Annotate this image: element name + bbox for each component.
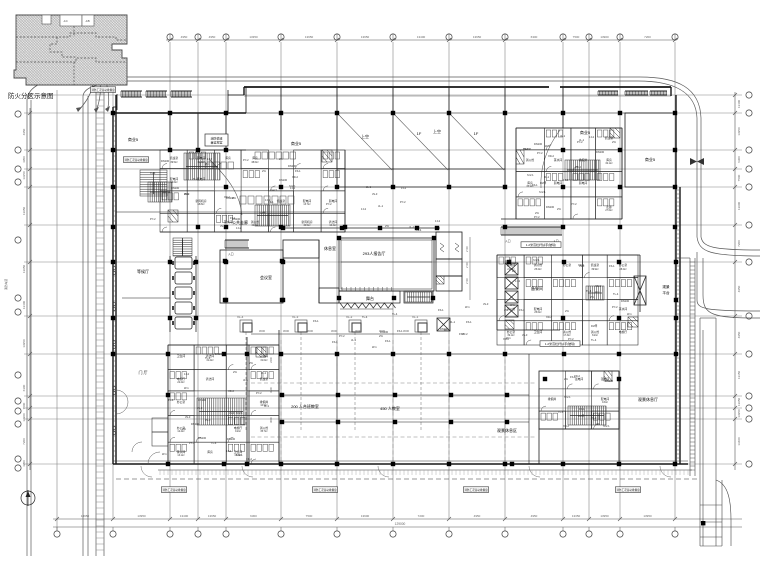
svg-text:2%: 2% xyxy=(262,169,266,173)
svg-text:DN100: DN100 xyxy=(191,422,200,426)
svg-text:13950: 13950 xyxy=(737,397,741,406)
svg-text:入口: 入口 xyxy=(228,252,234,256)
svg-text:JL-1: JL-1 xyxy=(560,134,566,138)
svg-text:值班室: 值班室 xyxy=(260,377,269,381)
svg-text:h=2.1: h=2.1 xyxy=(603,424,610,428)
svg-text:商业5: 商业5 xyxy=(128,136,139,142)
svg-text:FS-1: FS-1 xyxy=(570,375,576,379)
svg-text:13350: 13350 xyxy=(737,370,741,379)
svg-text:库房: 库房 xyxy=(606,158,612,162)
svg-text:JL-1: JL-1 xyxy=(544,175,550,179)
svg-text:38.6m²: 38.6m² xyxy=(251,161,258,164)
svg-text:TL-4: TL-4 xyxy=(150,171,156,175)
svg-text:25.6m²: 25.6m² xyxy=(534,311,541,314)
svg-text:S≈1079m²: S≈1079m² xyxy=(92,72,108,76)
svg-text:JL-1: JL-1 xyxy=(409,225,415,229)
svg-text:13350: 13350 xyxy=(22,171,26,180)
svg-text:FM甲: FM甲 xyxy=(591,324,598,328)
svg-text:1:12: 1:12 xyxy=(236,226,242,230)
svg-text:入口: 入口 xyxy=(505,239,511,243)
svg-text:W-1: W-1 xyxy=(595,290,600,294)
svg-text:13950: 13950 xyxy=(22,339,26,348)
svg-text:2400: 2400 xyxy=(269,357,273,363)
svg-text:h=2.1: h=2.1 xyxy=(564,395,571,399)
svg-text:13950: 13950 xyxy=(643,514,652,518)
svg-text:PY-2: PY-2 xyxy=(534,215,540,219)
svg-text:XD-2: XD-2 xyxy=(503,337,509,341)
svg-text:7500: 7500 xyxy=(306,514,313,518)
svg-text:PY-2: PY-2 xyxy=(571,202,577,206)
svg-text:W-1: W-1 xyxy=(205,162,210,166)
svg-text:JS-3: JS-3 xyxy=(205,418,211,422)
svg-text:13950: 13950 xyxy=(22,264,26,273)
svg-text:6300: 6300 xyxy=(531,35,538,39)
svg-text:TL-4: TL-4 xyxy=(558,410,564,414)
svg-text:库房: 库房 xyxy=(207,450,213,454)
svg-text:FS-1: FS-1 xyxy=(609,264,615,268)
svg-text:13400: 13400 xyxy=(180,514,189,518)
svg-text:7200: 7200 xyxy=(22,438,26,445)
svg-text:S≈1771m²: S≈1771m² xyxy=(22,28,38,32)
svg-text:13950: 13950 xyxy=(600,514,609,518)
svg-text:FS-1: FS-1 xyxy=(579,407,585,411)
svg-text:FS-1: FS-1 xyxy=(230,216,236,220)
svg-text:等候厅: 等候厅 xyxy=(137,268,149,274)
svg-text:13900: 13900 xyxy=(600,35,609,39)
svg-text:商业5: 商业5 xyxy=(580,129,591,135)
svg-text:13.7m²: 13.7m² xyxy=(303,203,310,206)
svg-text:XL-3: XL-3 xyxy=(292,315,299,319)
svg-text:3600: 3600 xyxy=(269,417,273,423)
svg-text:13900: 13900 xyxy=(22,413,26,422)
svg-text:消火栓: 消火栓 xyxy=(563,330,572,334)
svg-text:28.2m²: 28.2m² xyxy=(619,268,626,271)
svg-text:1F: 1F xyxy=(474,131,479,136)
svg-text:JL-1: JL-1 xyxy=(261,371,267,375)
svg-text:FS-1: FS-1 xyxy=(459,332,465,336)
svg-text:观景: 观景 xyxy=(662,284,670,289)
svg-text:3600: 3600 xyxy=(355,329,362,333)
svg-text:FS-1: FS-1 xyxy=(385,339,391,343)
svg-text:1:12: 1:12 xyxy=(515,279,521,283)
svg-text:W-1: W-1 xyxy=(372,345,377,349)
svg-text:17.3m²: 17.3m² xyxy=(563,334,570,337)
svg-text:4950: 4950 xyxy=(474,514,481,518)
svg-text:13950: 13950 xyxy=(473,35,482,39)
svg-text:消防工况自动排烟窗: 消防工况自动排烟窗 xyxy=(124,158,148,162)
svg-text:新风机房: 新风机房 xyxy=(301,220,312,224)
svg-text:XL-4: XL-4 xyxy=(237,315,244,319)
svg-text:32.1m²: 32.1m² xyxy=(605,162,612,165)
svg-text:2%: 2% xyxy=(233,370,237,374)
svg-text:W-1: W-1 xyxy=(510,303,515,307)
svg-text:观景休息厅: 观景休息厅 xyxy=(638,396,658,402)
svg-text:电梯厅: 电梯厅 xyxy=(619,330,628,334)
svg-text:消火栓: 消火栓 xyxy=(591,330,600,334)
svg-text:防火分区示意图: 防火分区示意图 xyxy=(8,91,54,100)
svg-text:JS-3: JS-3 xyxy=(372,192,378,196)
svg-text:-1B: -1B xyxy=(85,19,90,23)
svg-text:13950: 13950 xyxy=(208,514,217,518)
svg-text:293人报告厅: 293人报告厅 xyxy=(363,250,386,256)
svg-text:1.2米高栏杆扶手(玻璃): 1.2米高栏杆扶手(玻璃) xyxy=(526,242,556,247)
svg-text:消防车道: 消防车道 xyxy=(4,279,8,290)
svg-text:配电间: 配电间 xyxy=(170,177,179,181)
svg-text:2%: 2% xyxy=(249,361,253,365)
svg-text:JS-3: JS-3 xyxy=(220,224,226,228)
svg-text:DN100: DN100 xyxy=(546,205,555,209)
svg-text:13400: 13400 xyxy=(737,99,741,108)
svg-text:W-1: W-1 xyxy=(465,305,470,309)
svg-text:FS-1: FS-1 xyxy=(438,308,444,312)
svg-text:1:12: 1:12 xyxy=(290,186,296,190)
svg-text:13950: 13950 xyxy=(22,206,26,215)
svg-text:S≈1263m²: S≈1263m² xyxy=(82,45,98,49)
svg-text:DN100: DN100 xyxy=(534,142,543,146)
svg-text:平台: 平台 xyxy=(662,290,670,295)
svg-text:13350: 13350 xyxy=(249,35,258,39)
svg-text:13400: 13400 xyxy=(417,35,426,39)
svg-text:FM甲: FM甲 xyxy=(540,181,547,185)
svg-text:2%: 2% xyxy=(535,211,539,215)
svg-text:PY-2: PY-2 xyxy=(400,200,406,204)
svg-text:休息室: 休息室 xyxy=(324,245,336,251)
svg-text:2%: 2% xyxy=(512,269,516,273)
svg-text:TL-4: TL-4 xyxy=(362,315,368,319)
svg-text:S≈1948m²: S≈1948m² xyxy=(20,51,36,55)
svg-text:W-1: W-1 xyxy=(184,192,189,196)
svg-text:消火栓: 消火栓 xyxy=(526,158,535,162)
svg-text:上空: 上空 xyxy=(433,128,441,134)
svg-text:TL-4: TL-4 xyxy=(193,177,199,181)
svg-text:消防工况自动排烟窗: 消防工况自动排烟窗 xyxy=(162,488,186,492)
svg-text:42.2m²: 42.2m² xyxy=(251,224,258,227)
svg-text:FM甲: FM甲 xyxy=(259,211,266,215)
svg-text:门 厅: 门 厅 xyxy=(138,369,147,375)
svg-text:XD-2: XD-2 xyxy=(575,165,581,169)
svg-text:h=2.1: h=2.1 xyxy=(271,188,278,192)
svg-text:弱电间: 弱电间 xyxy=(579,181,588,185)
svg-text:TL-4: TL-4 xyxy=(392,312,398,316)
svg-text:FM甲: FM甲 xyxy=(578,414,585,418)
svg-text:清洁间: 清洁间 xyxy=(206,377,215,381)
svg-text:配电间: 配电间 xyxy=(534,307,543,311)
svg-text:消防工况自动排烟窗: 消防工况自动排烟窗 xyxy=(616,488,640,492)
svg-text:450 人教室: 450 人教室 xyxy=(380,405,400,411)
svg-text:2%: 2% xyxy=(612,140,616,144)
svg-text:消火栓: 消火栓 xyxy=(260,426,269,430)
svg-text:排烟井: 排烟井 xyxy=(260,400,269,404)
svg-text:13400: 13400 xyxy=(737,437,741,446)
svg-text:1:12: 1:12 xyxy=(184,372,190,376)
svg-text:2%: 2% xyxy=(564,377,568,381)
svg-text:-1C: -1C xyxy=(63,19,69,23)
svg-text:DN100: DN100 xyxy=(161,159,170,163)
svg-text:4950: 4950 xyxy=(209,35,216,39)
svg-text:JS-3: JS-3 xyxy=(197,406,203,410)
svg-text:13950: 13950 xyxy=(737,127,741,136)
svg-text:DN100: DN100 xyxy=(198,436,207,440)
svg-text:DN100: DN100 xyxy=(198,398,207,402)
svg-text:JL-1: JL-1 xyxy=(264,404,270,408)
svg-text:值班室: 值班室 xyxy=(170,156,179,160)
svg-text:XL-1: XL-1 xyxy=(412,315,419,319)
svg-text:DN100: DN100 xyxy=(440,327,449,331)
svg-text:DN100: DN100 xyxy=(226,196,235,200)
svg-text:弱电间: 弱电间 xyxy=(554,181,563,185)
svg-text:卫生间: 卫生间 xyxy=(177,354,186,358)
svg-text:弱电间: 弱电间 xyxy=(197,156,206,160)
svg-text:4950: 4950 xyxy=(22,128,26,135)
svg-text:TL-4: TL-4 xyxy=(211,441,217,445)
svg-text:PY-2: PY-2 xyxy=(189,441,195,445)
svg-text:JS-3: JS-3 xyxy=(483,302,489,306)
svg-text:茶水间: 茶水间 xyxy=(554,158,563,162)
svg-text:备餐间: 备餐间 xyxy=(531,285,543,291)
svg-text:茶水间: 茶水间 xyxy=(177,450,186,454)
svg-text:W-1: W-1 xyxy=(184,386,189,390)
svg-text:4950: 4950 xyxy=(737,285,741,292)
svg-text:JL-1: JL-1 xyxy=(351,338,357,342)
svg-text:PY-2: PY-2 xyxy=(537,151,543,155)
svg-text:FS-1: FS-1 xyxy=(268,200,274,204)
svg-text:W-1: W-1 xyxy=(162,452,167,456)
svg-text:JL-1: JL-1 xyxy=(366,185,372,189)
svg-text:4950: 4950 xyxy=(737,331,741,338)
svg-text:13950: 13950 xyxy=(305,35,314,39)
svg-text:DN100: DN100 xyxy=(171,186,180,190)
svg-text:3600: 3600 xyxy=(307,329,314,333)
svg-text:h=2.1: h=2.1 xyxy=(236,411,243,415)
svg-text:2%: 2% xyxy=(596,422,600,426)
svg-text:茶水间: 茶水间 xyxy=(619,307,628,311)
svg-text:13950: 13950 xyxy=(137,514,146,518)
svg-text:JS-3: JS-3 xyxy=(229,411,235,415)
svg-text:1.2米高栏杆扶手(玻璃): 1.2米高栏杆扶手(玻璃) xyxy=(545,341,575,346)
svg-text:办公室: 办公室 xyxy=(507,330,516,334)
svg-text:h=2.1: h=2.1 xyxy=(527,173,534,177)
svg-text:h=2.1: h=2.1 xyxy=(533,258,540,262)
svg-text:XD-2: XD-2 xyxy=(228,389,234,393)
svg-text:9.2m²: 9.2m² xyxy=(235,430,241,433)
svg-text:31.0m²: 31.0m² xyxy=(260,359,267,362)
svg-text:7500: 7500 xyxy=(573,35,580,39)
svg-text:129000: 129000 xyxy=(395,522,406,526)
svg-text:配电间: 配电间 xyxy=(303,199,312,203)
svg-text:FM甲: FM甲 xyxy=(505,259,512,263)
svg-text:电梯厅: 电梯厅 xyxy=(177,377,186,381)
svg-text:PY-2: PY-2 xyxy=(568,337,574,341)
svg-text:h=2.1: h=2.1 xyxy=(539,190,546,194)
svg-text:200 人合班教室: 200 人合班教室 xyxy=(291,403,319,409)
svg-text:商业5: 商业5 xyxy=(291,140,302,146)
svg-text:走廊: 走廊 xyxy=(606,205,612,209)
svg-text:DN100: DN100 xyxy=(279,178,288,182)
svg-text:JL-1: JL-1 xyxy=(450,320,456,324)
svg-text:W-1: W-1 xyxy=(627,312,632,316)
svg-text:XD-2: XD-2 xyxy=(546,315,552,319)
svg-text:DN100: DN100 xyxy=(288,164,297,168)
svg-text:1:12: 1:12 xyxy=(563,178,569,182)
svg-text:清洁间: 清洁间 xyxy=(329,220,338,224)
svg-text:h=2.1: h=2.1 xyxy=(236,453,243,457)
svg-text:消火栓: 消火栓 xyxy=(507,307,516,311)
svg-text:3600: 3600 xyxy=(283,329,290,333)
svg-text:FS-1: FS-1 xyxy=(313,319,319,323)
svg-text:6300: 6300 xyxy=(22,384,26,391)
svg-text:1F: 1F xyxy=(417,131,422,136)
svg-text:4950: 4950 xyxy=(22,156,26,163)
svg-text:配电间: 配电间 xyxy=(601,397,610,401)
svg-text:XD-2: XD-2 xyxy=(246,457,252,461)
svg-text:10.4m²: 10.4m² xyxy=(329,224,336,227)
svg-text:TL-4: TL-4 xyxy=(591,338,597,342)
svg-text:S≈1050m²: S≈1050m² xyxy=(92,26,108,30)
svg-text:40.5m²: 40.5m² xyxy=(303,224,310,227)
svg-text:消火栓: 消火栓 xyxy=(251,220,260,224)
svg-text:JL-1: JL-1 xyxy=(243,378,249,382)
svg-text:XD-2: XD-2 xyxy=(563,424,569,428)
svg-text:13900: 13900 xyxy=(737,201,741,210)
svg-text:2%: 2% xyxy=(565,309,569,313)
svg-text:3600: 3600 xyxy=(403,329,410,333)
svg-text:JS-3: JS-3 xyxy=(579,264,585,268)
svg-text:TL-4: TL-4 xyxy=(168,398,174,402)
svg-text:2%: 2% xyxy=(557,207,561,211)
svg-text:电梯厅: 电梯厅 xyxy=(234,426,243,430)
svg-text:XD-2: XD-2 xyxy=(292,175,298,179)
svg-text:13400: 13400 xyxy=(22,300,26,309)
svg-text:16.6m²: 16.6m² xyxy=(170,181,177,184)
svg-text:1:12: 1:12 xyxy=(226,449,232,453)
svg-text:XD-2: XD-2 xyxy=(595,284,601,288)
svg-text:1:12: 1:12 xyxy=(207,157,213,161)
svg-text:DN100: DN100 xyxy=(227,437,236,441)
svg-text:2%: 2% xyxy=(385,224,389,228)
svg-text:PY-2: PY-2 xyxy=(150,217,156,221)
svg-text:舞台: 舞台 xyxy=(366,295,374,301)
svg-text:库房: 库房 xyxy=(225,156,231,160)
svg-text:2%: 2% xyxy=(182,427,186,431)
svg-text:PY-2: PY-2 xyxy=(243,158,249,162)
svg-text:S≈1036m²: S≈1036m² xyxy=(34,73,50,77)
svg-text:消防工况自动排烟窗: 消防工况自动排烟窗 xyxy=(313,488,337,492)
svg-text:2700: 2700 xyxy=(465,278,469,284)
svg-text:4950: 4950 xyxy=(531,514,538,518)
svg-text:值班室: 值班室 xyxy=(591,263,600,267)
svg-text:DN100: DN100 xyxy=(596,150,605,154)
svg-text:FS-1: FS-1 xyxy=(295,169,301,173)
svg-text:JS-3: JS-3 xyxy=(522,333,528,337)
svg-text:DN100: DN100 xyxy=(523,147,532,151)
svg-text:消防工况自动排烟窗: 消防工况自动排烟窗 xyxy=(91,88,115,92)
svg-text:XD-2: XD-2 xyxy=(548,154,554,158)
svg-text:FS-1: FS-1 xyxy=(532,183,538,187)
svg-text:39.5m²: 39.5m² xyxy=(170,161,177,164)
svg-text:DN100: DN100 xyxy=(621,299,630,303)
svg-text:TL-4: TL-4 xyxy=(586,289,592,293)
svg-text:25.2m²: 25.2m² xyxy=(534,268,541,271)
svg-text:PY-2: PY-2 xyxy=(577,140,583,144)
svg-text:35.7m²: 35.7m² xyxy=(260,430,267,433)
svg-text:13950: 13950 xyxy=(361,35,370,39)
svg-text:2%: 2% xyxy=(590,295,594,299)
svg-text:13350: 13350 xyxy=(572,514,581,518)
svg-text:PY-2: PY-2 xyxy=(256,391,262,395)
svg-text:2%: 2% xyxy=(379,334,383,338)
svg-text:商业5: 商业5 xyxy=(645,156,656,162)
svg-text:JS-3: JS-3 xyxy=(591,416,597,420)
svg-text:观景休息区: 观景休息区 xyxy=(497,427,517,433)
svg-text:3600: 3600 xyxy=(379,329,386,333)
svg-text:新风机房: 新风机房 xyxy=(195,199,206,203)
svg-text:JS-3: JS-3 xyxy=(185,415,191,419)
svg-text:消火栓: 消火栓 xyxy=(534,263,543,267)
svg-text:1:12: 1:12 xyxy=(435,219,441,223)
svg-text:1:12: 1:12 xyxy=(401,186,407,190)
svg-text:1:12: 1:12 xyxy=(589,135,595,139)
svg-text:1:12: 1:12 xyxy=(361,207,367,211)
svg-text:7500: 7500 xyxy=(737,174,741,181)
svg-text:排烟井: 排烟井 xyxy=(548,397,557,401)
svg-text:13950: 13950 xyxy=(737,409,741,418)
svg-text:8.2m²: 8.2m² xyxy=(592,334,598,337)
svg-text:W-1: W-1 xyxy=(545,144,550,148)
svg-text:7200: 7200 xyxy=(737,240,741,247)
svg-text:办公室: 办公室 xyxy=(177,400,186,404)
svg-text:9.3m²: 9.3m² xyxy=(602,401,608,404)
svg-text:兼监控室: 兼监控室 xyxy=(210,140,222,145)
svg-text:上空: 上空 xyxy=(361,133,369,139)
svg-text:FS-1: FS-1 xyxy=(332,340,338,344)
svg-text:JL-1: JL-1 xyxy=(378,204,384,208)
svg-text:排烟井: 排烟井 xyxy=(579,158,588,162)
svg-text:TL-4: TL-4 xyxy=(613,292,619,296)
svg-text:XL-2: XL-2 xyxy=(346,315,353,319)
svg-text:FS-1: FS-1 xyxy=(466,320,472,324)
svg-text:6300: 6300 xyxy=(250,514,257,518)
svg-text:DN100: DN100 xyxy=(215,352,224,356)
svg-text:7200: 7200 xyxy=(644,35,651,39)
svg-text:3600: 3600 xyxy=(259,329,266,333)
svg-text:卫生间: 卫生间 xyxy=(260,354,269,358)
svg-text:FS-1: FS-1 xyxy=(519,308,525,312)
svg-text:3600: 3600 xyxy=(331,329,338,333)
svg-text:7500: 7500 xyxy=(22,402,26,409)
svg-text:会议室: 会议室 xyxy=(260,274,272,280)
svg-text:TL-4: TL-4 xyxy=(416,228,422,232)
svg-text:TL-4: TL-4 xyxy=(205,356,211,360)
svg-text:13900: 13900 xyxy=(361,514,370,518)
svg-text:39.9m²: 39.9m² xyxy=(591,268,598,271)
svg-text:4950: 4950 xyxy=(22,460,26,467)
svg-text:3600: 3600 xyxy=(269,387,273,393)
svg-text:13.1m²: 13.1m² xyxy=(177,454,184,457)
svg-text:消防工况自动排烟窗: 消防工况自动排烟窗 xyxy=(464,488,488,492)
svg-text:22.2m²: 22.2m² xyxy=(177,381,184,384)
svg-text:27.6m²: 27.6m² xyxy=(605,209,612,212)
svg-text:卫生间: 卫生间 xyxy=(534,330,543,334)
svg-text:2700: 2700 xyxy=(465,262,469,268)
svg-text:18.8m²: 18.8m² xyxy=(197,203,204,206)
svg-text:PY-2: PY-2 xyxy=(326,202,332,206)
svg-text:4950: 4950 xyxy=(181,35,188,39)
svg-text:6300: 6300 xyxy=(737,156,741,163)
svg-text:7200: 7200 xyxy=(418,514,425,518)
svg-text:2700: 2700 xyxy=(465,246,469,252)
svg-text:PY-2: PY-2 xyxy=(339,334,345,338)
svg-text:31.2m²: 31.2m² xyxy=(197,161,204,164)
